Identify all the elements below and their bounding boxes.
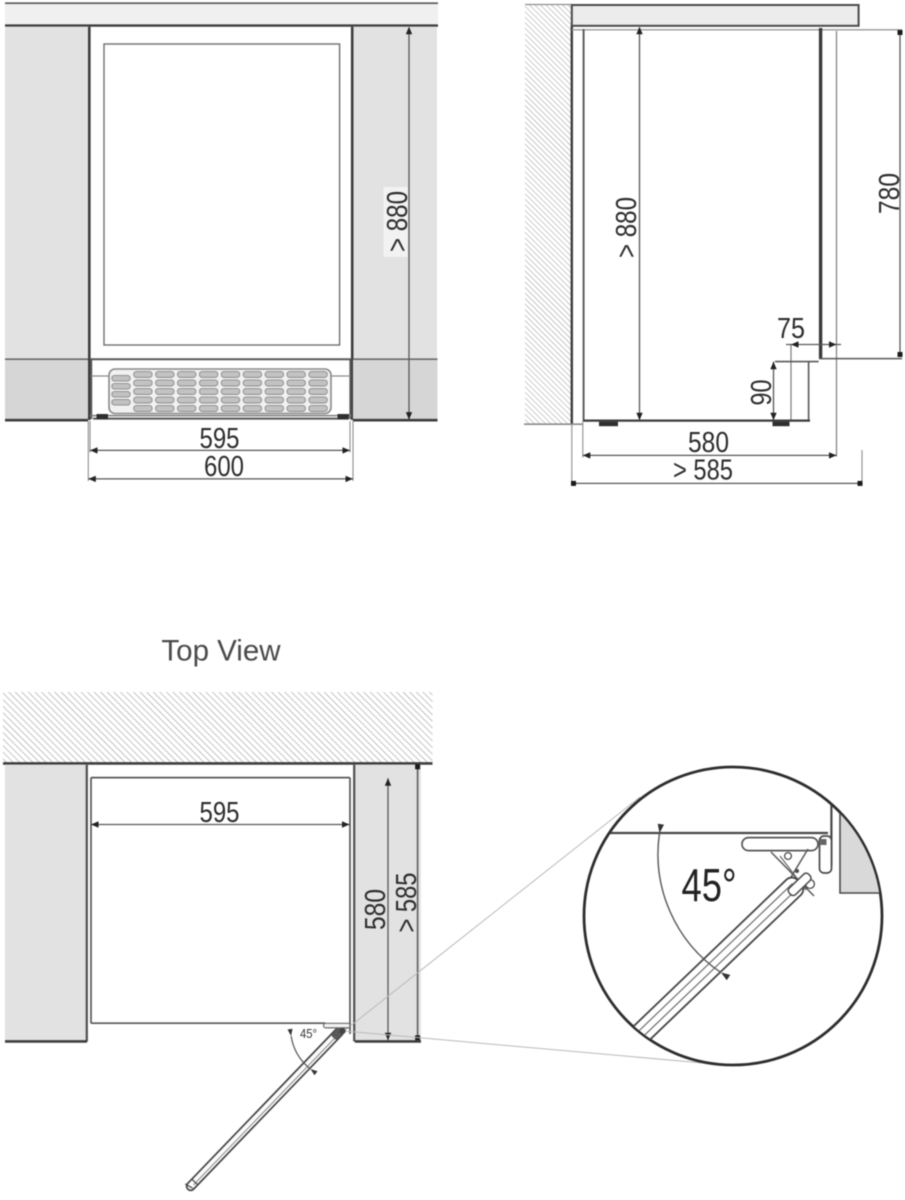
svg-text:> 585: > 585: [391, 873, 423, 933]
svg-text:75: 75: [777, 313, 805, 345]
svg-text:Top View: Top View: [161, 635, 281, 668]
svg-text:600: 600: [204, 451, 244, 483]
svg-text:45°: 45°: [682, 859, 737, 911]
svg-text:> 880: > 880: [611, 197, 643, 258]
svg-text:595: 595: [200, 797, 240, 829]
svg-text:90: 90: [746, 380, 778, 406]
svg-text:> 585: > 585: [673, 455, 733, 487]
svg-text:580: 580: [360, 889, 392, 930]
svg-text:780: 780: [874, 173, 905, 214]
svg-text:45°: 45°: [300, 1027, 317, 1041]
svg-text:> 880: > 880: [382, 191, 414, 252]
